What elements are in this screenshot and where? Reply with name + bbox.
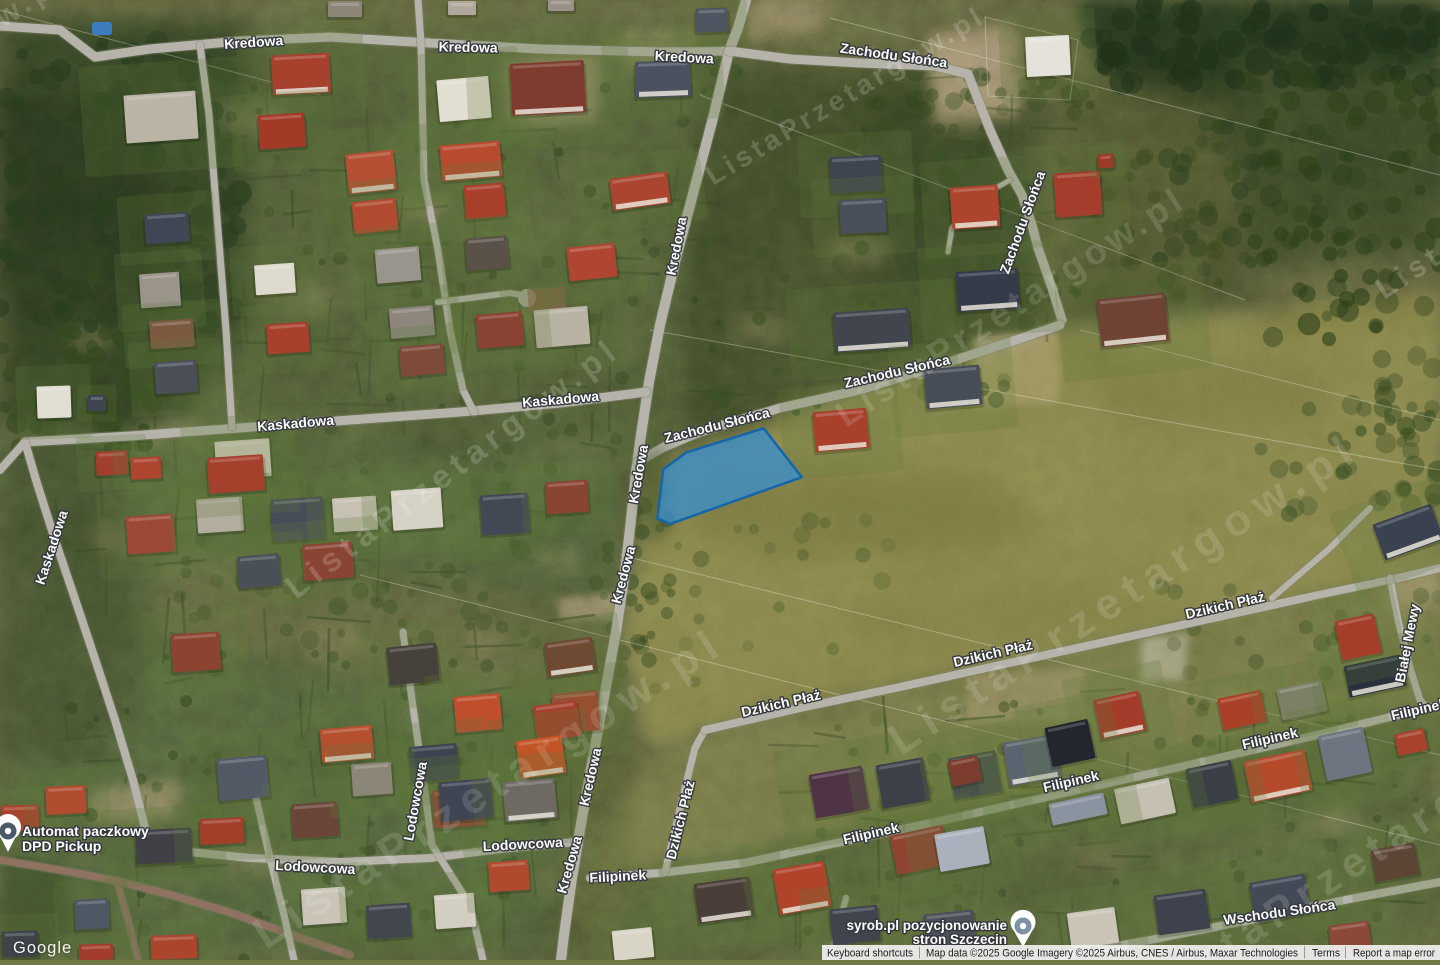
svg-text:Terms: Terms — [1312, 948, 1340, 960]
svg-text:Kredowa: Kredowa — [438, 38, 498, 55]
svg-text:Map data ©2025 Google Imagery: Map data ©2025 Google Imagery ©2025 Airb… — [926, 948, 1298, 960]
svg-text:DPD Pickup: DPD Pickup — [22, 838, 101, 854]
svg-text:stron Szczecin: stron Szczecin — [912, 932, 1007, 947]
svg-text:Report a map error: Report a map error — [1353, 948, 1435, 960]
svg-text:Keyboard shortcuts: Keyboard shortcuts — [827, 948, 913, 960]
svg-text:Automat paczkowy: Automat paczkowy — [22, 823, 149, 839]
svg-text:Filipinek: Filipinek — [589, 867, 647, 886]
svg-text:Kredowa: Kredowa — [654, 47, 714, 66]
svg-text:syrob.pl pozycjonowanie: syrob.pl pozycjonowanie — [846, 918, 1007, 933]
svg-text:Google: Google — [13, 939, 72, 957]
